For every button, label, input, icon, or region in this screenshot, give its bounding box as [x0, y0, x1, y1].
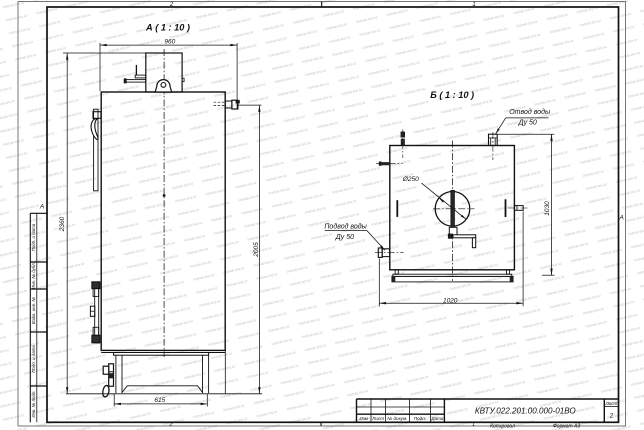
svg-text:1020: 1020: [443, 297, 458, 304]
svg-text:2: 2: [609, 414, 614, 420]
svg-text:Подвод воды: Подвод воды: [324, 223, 367, 231]
svg-text:Ду 50: Ду 50: [518, 120, 537, 127]
svg-text:Ду 50: Ду 50: [335, 234, 354, 241]
svg-text:Лист: Лист: [371, 416, 384, 421]
svg-text:Лист: Лист: [604, 401, 617, 406]
svg-text:Подп. и дата: Подп. и дата: [31, 223, 36, 251]
svg-text:Копировал: Копировал: [490, 423, 515, 429]
svg-text:Взам. инв. №: Взам. инв. №: [31, 297, 36, 324]
svg-text:А ( 1 : 10 ): А ( 1 : 10 ): [145, 22, 190, 32]
svg-text:Инв. № дубл.: Инв. № дубл.: [31, 262, 36, 289]
svg-text:615: 615: [154, 397, 165, 404]
svg-text:Б ( 1 : 10 ): Б ( 1 : 10 ): [430, 90, 474, 100]
svg-text:А: А: [619, 215, 624, 222]
svg-text:Ø250: Ø250: [402, 176, 419, 183]
svg-text:Подп. и дата: Подп. и дата: [31, 345, 36, 373]
svg-text:Изм: Изм: [359, 416, 368, 421]
svg-text:Подп.: Подп.: [414, 416, 426, 421]
svg-text:А: А: [39, 204, 44, 211]
svg-text:960: 960: [164, 38, 175, 45]
svg-text:1030: 1030: [544, 201, 551, 216]
svg-text:2: 2: [168, 422, 173, 428]
svg-text:1: 1: [472, 2, 475, 8]
svg-text:2360: 2360: [59, 216, 66, 232]
svg-text:Формат А3: Формат А3: [553, 423, 581, 429]
svg-text:1: 1: [472, 422, 475, 428]
svg-text:Дата: Дата: [430, 416, 444, 421]
svg-text:2005: 2005: [253, 242, 260, 258]
svg-text:2: 2: [169, 2, 174, 8]
svg-text:№ докум.: № докум.: [387, 416, 407, 421]
svg-text:Инв. № подл.: Инв. № подл.: [31, 390, 36, 417]
svg-text:Отвод воды: Отвод воды: [509, 108, 551, 116]
svg-text:КВТУ.022.201.00.000-01ВО: КВТУ.022.201.00.000-01ВО: [475, 407, 577, 416]
